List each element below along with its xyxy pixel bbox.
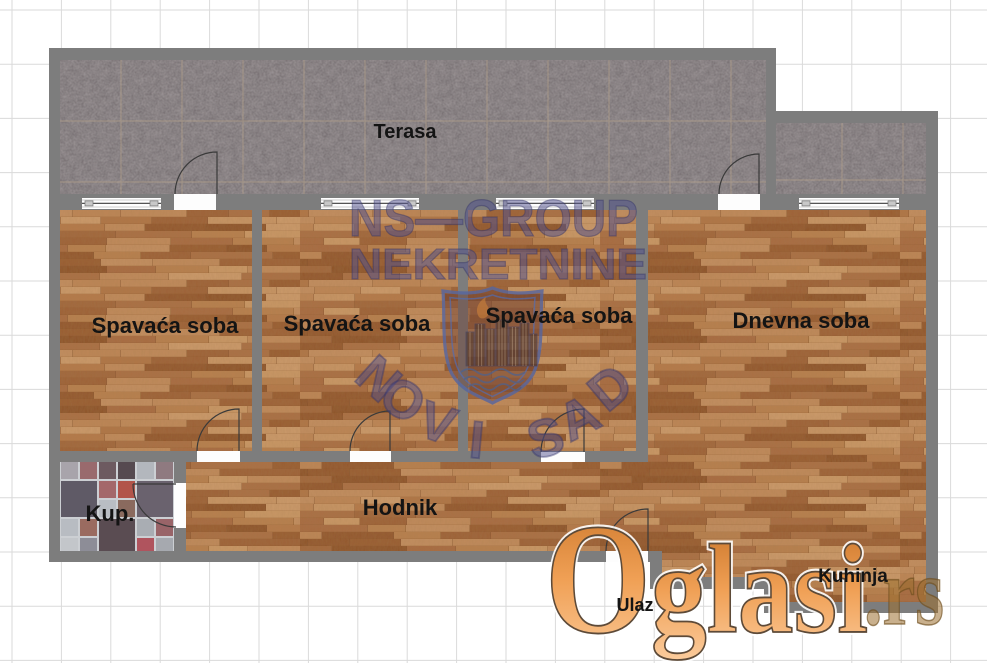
svg-text:Dnevna soba: Dnevna soba xyxy=(733,308,871,333)
svg-text:Spavaća soba: Spavaća soba xyxy=(284,311,432,336)
svg-text:O: O xyxy=(545,492,651,663)
svg-text:Hodnik: Hodnik xyxy=(363,495,438,520)
svg-text:Kuhinja: Kuhinja xyxy=(818,566,888,587)
svg-text:Kup.: Kup. xyxy=(86,501,135,526)
svg-text:Ulaz: Ulaz xyxy=(616,595,653,615)
svg-text:NEKRETNINE: NEKRETNINE xyxy=(349,240,647,289)
svg-text:Spavaća soba: Spavaća soba xyxy=(92,313,240,338)
svg-text:.rs: .rs xyxy=(864,538,944,645)
svg-text:Spavaća soba: Spavaća soba xyxy=(486,303,634,328)
svg-text:glasi: glasi xyxy=(651,520,868,660)
svg-text:Terasa: Terasa xyxy=(373,121,437,143)
